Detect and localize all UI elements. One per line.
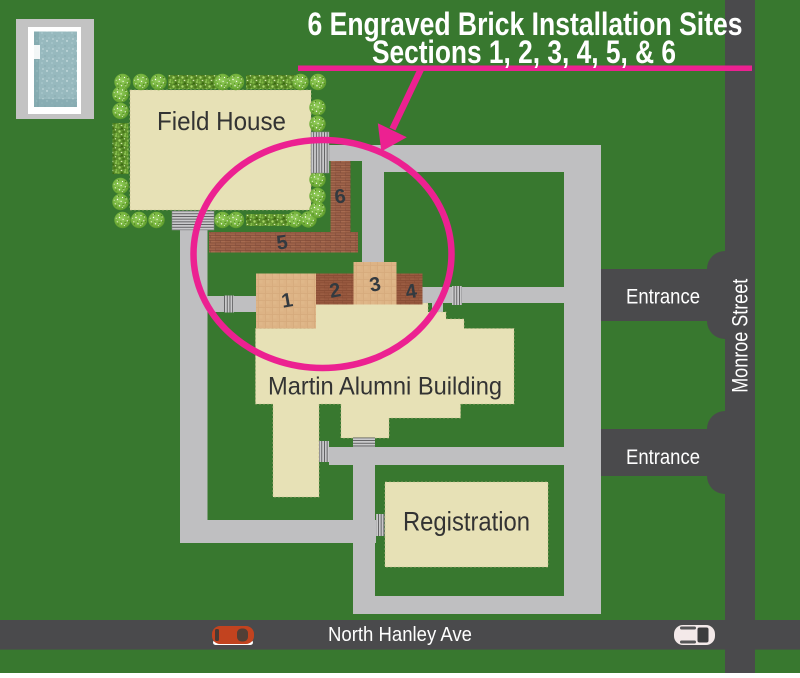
svg-text:Martin Alumni Building: Martin Alumni Building [268,372,502,400]
svg-text:Sections 1, 2, 3, 4, 5, & 6: Sections 1, 2, 3, 4, 5, & 6 [372,34,676,70]
svg-text:6: 6 [333,185,346,208]
svg-text:Registration: Registration [403,507,530,537]
svg-text:Entrance: Entrance [626,286,700,309]
svg-text:Entrance: Entrance [626,446,700,469]
svg-text:North Hanley Ave: North Hanley Ave [328,624,472,646]
svg-text:Monroe Street: Monroe Street [727,279,752,393]
svg-text:Field House: Field House [157,106,286,136]
